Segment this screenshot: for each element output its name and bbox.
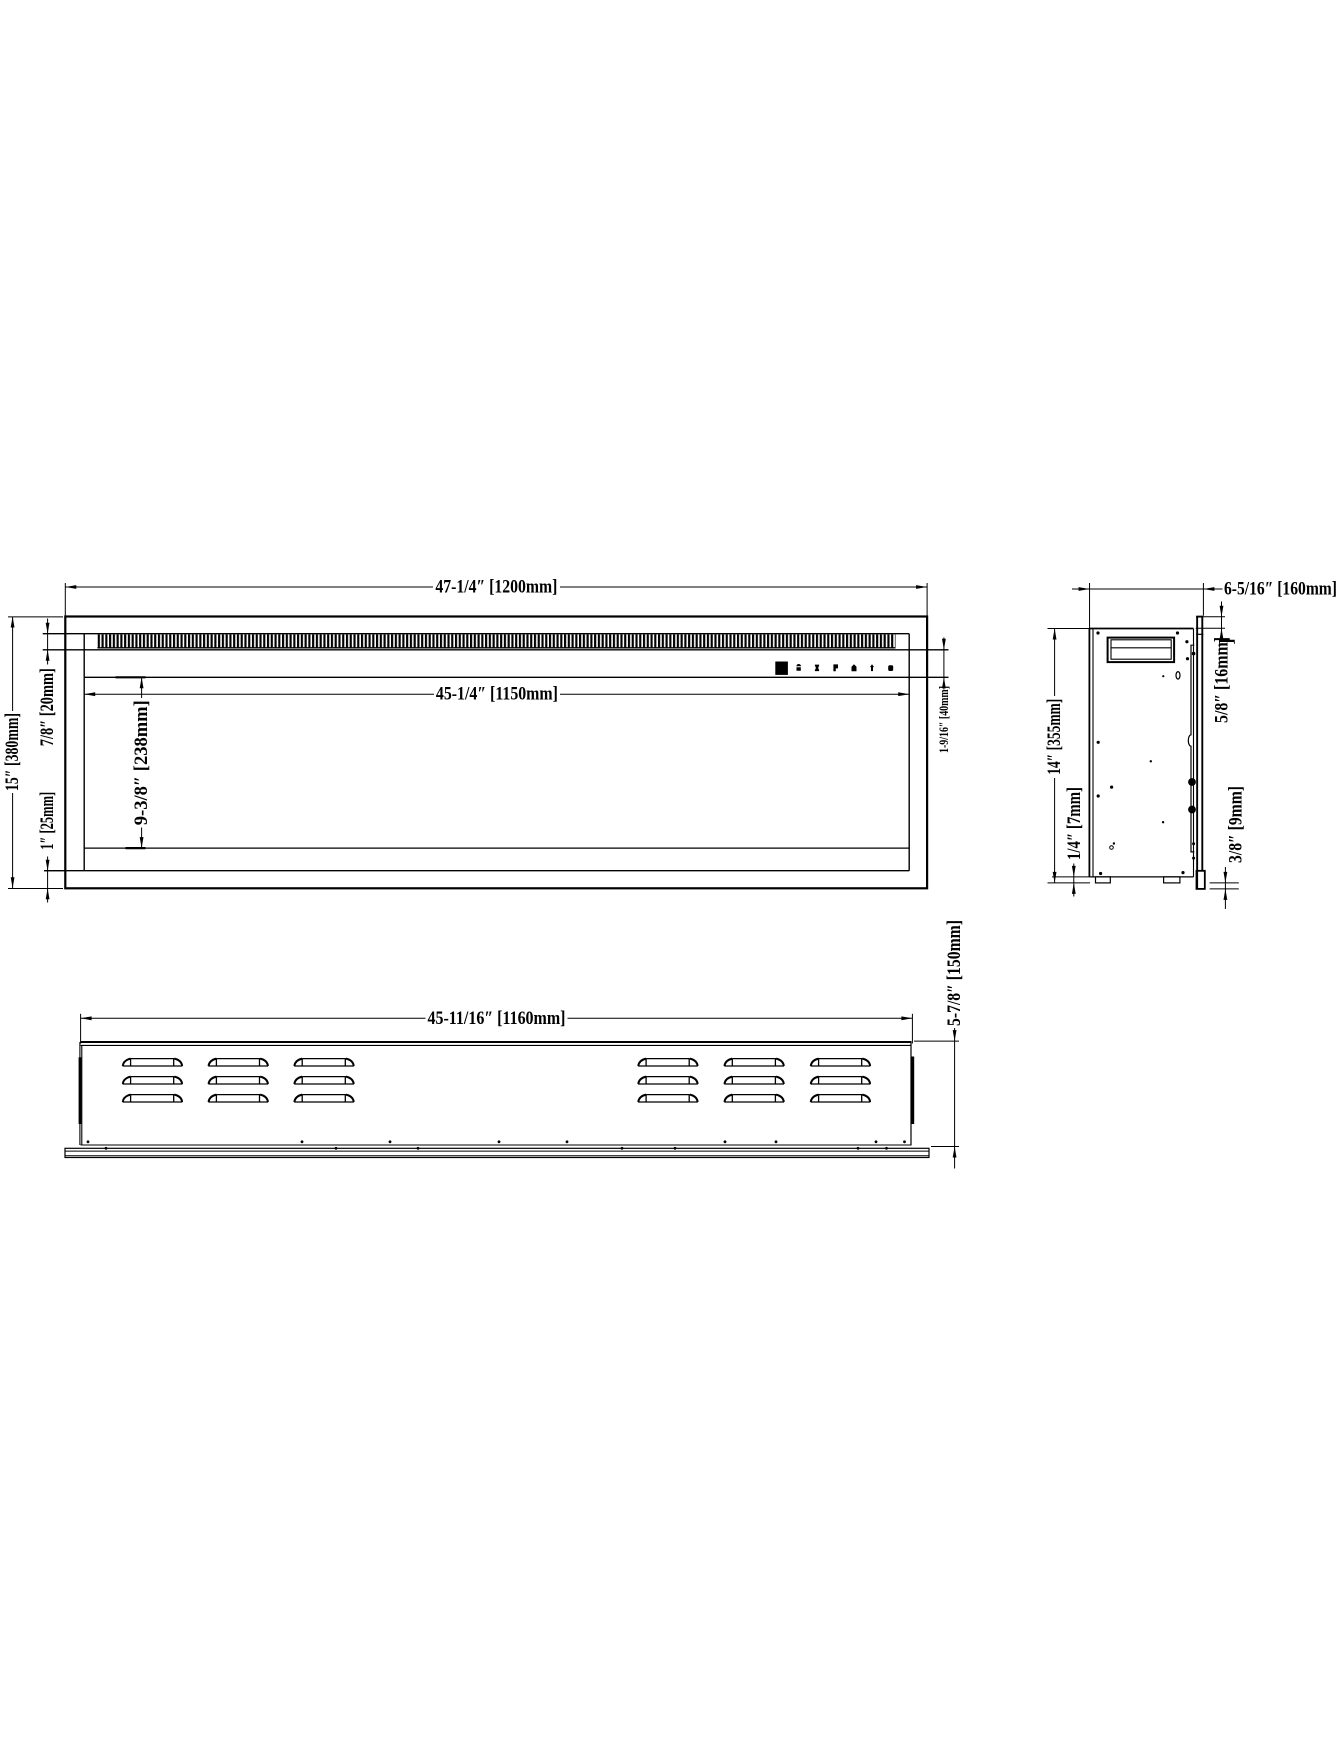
svg-text:45-1/4″ [1150mm]: 45-1/4″ [1150mm] bbox=[436, 684, 558, 705]
svg-text:45-11/16″ [1160mm]: 45-11/16″ [1160mm] bbox=[428, 1008, 566, 1029]
svg-text:7/8″ [20mm]: 7/8″ [20mm] bbox=[37, 668, 58, 746]
svg-text:15″ [380mm]: 15″ [380mm] bbox=[2, 713, 23, 791]
svg-text:9-3/8″ [238mm]: 9-3/8″ [238mm] bbox=[131, 700, 152, 825]
svg-text:1/4″ [7mm]: 1/4″ [7mm] bbox=[1064, 787, 1085, 860]
svg-text:14″ [355mm]: 14″ [355mm] bbox=[1044, 699, 1065, 775]
svg-text:6-5/16″ [160mm]: 6-5/16″ [160mm] bbox=[1224, 579, 1337, 600]
svg-text:5-7/8″ [150mm]: 5-7/8″ [150mm] bbox=[944, 920, 965, 1026]
svg-text:1″ [25mm]: 1″ [25mm] bbox=[37, 792, 58, 850]
svg-text:5/8″ [16mm]: 5/8″ [16mm] bbox=[1211, 637, 1232, 723]
svg-text:]: ] bbox=[1217, 638, 1238, 644]
svg-text:3/8″ [9mm]: 3/8″ [9mm] bbox=[1226, 786, 1247, 863]
svg-text:1-9/16″ [40mm]: 1-9/16″ [40mm] bbox=[936, 686, 951, 753]
svg-text:47-1/4″ [1200mm]: 47-1/4″ [1200mm] bbox=[435, 577, 557, 598]
